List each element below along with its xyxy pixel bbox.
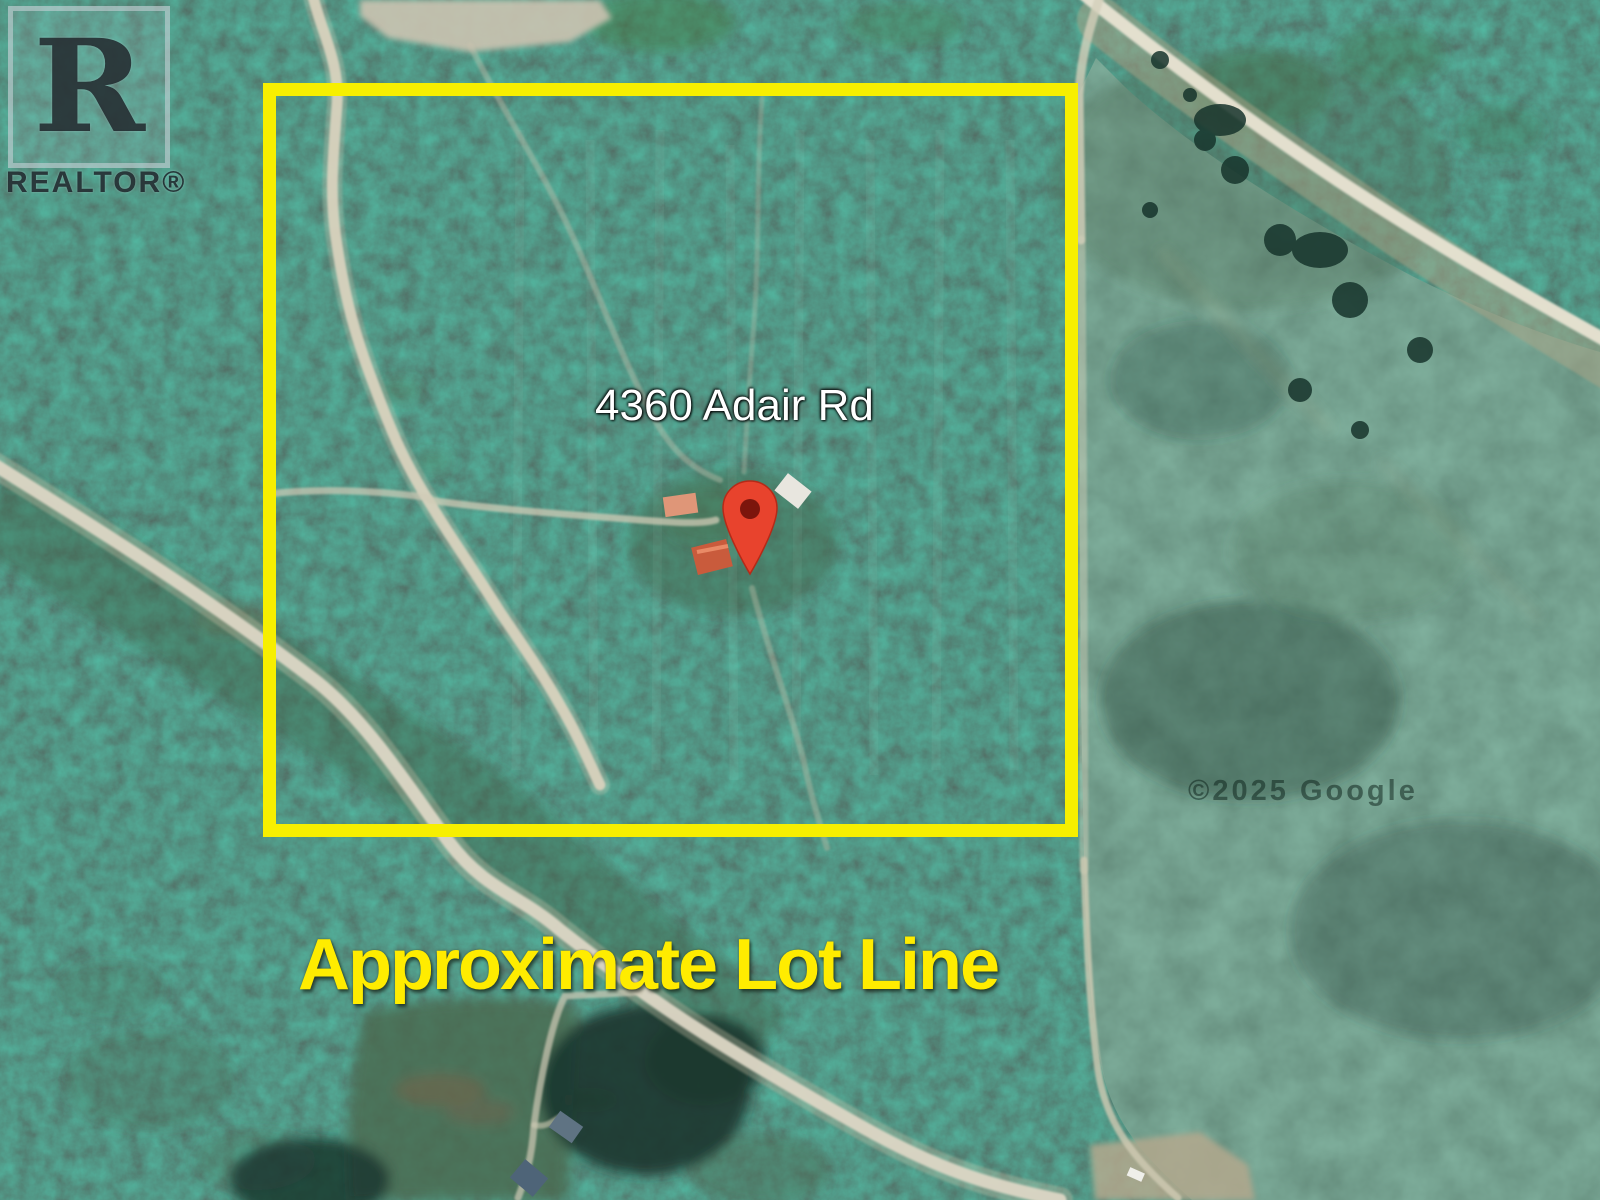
realtor-logo-letter: R: [33, 23, 145, 151]
satellite-photo: 4360 Adair Rd Approximate Lot Line R REA…: [0, 0, 1600, 1200]
realtor-logo-text: REALTOR®: [6, 166, 186, 200]
realtor-logo-square: R: [8, 6, 170, 168]
lot-line-rectangle: [263, 83, 1078, 837]
lot-line-label: Approximate Lot Line: [298, 924, 998, 1006]
realtor-logo: R REALTOR®: [8, 6, 178, 206]
address-label: 4360 Adair Rd: [595, 381, 874, 431]
google-attribution: ©2025 Google: [1188, 775, 1418, 808]
